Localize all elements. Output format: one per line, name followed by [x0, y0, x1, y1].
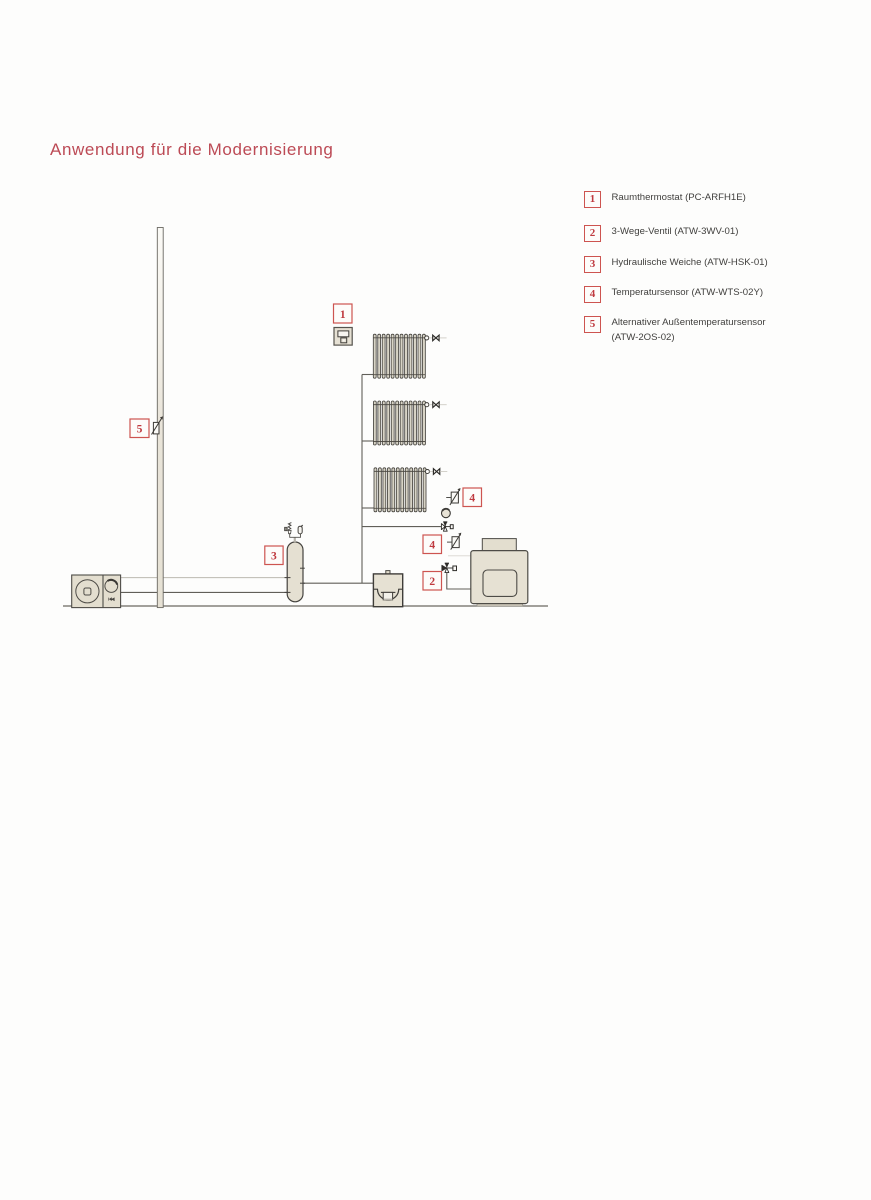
- svg-text:2: 2: [429, 576, 435, 588]
- svg-text:4: 4: [429, 540, 435, 552]
- svg-text:3: 3: [271, 551, 277, 563]
- svg-text:4: 4: [469, 493, 475, 505]
- svg-text:1: 1: [340, 309, 346, 321]
- svg-text:5: 5: [137, 424, 143, 436]
